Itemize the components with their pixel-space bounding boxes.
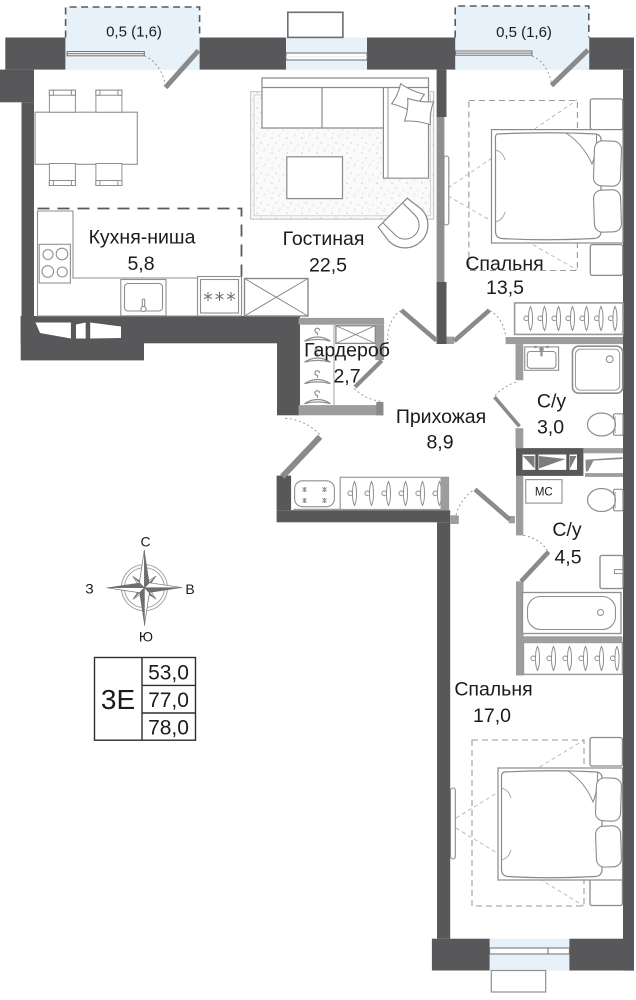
svg-text:3,0: 3,0: [537, 417, 564, 439]
svg-text:Гардероб: Гардероб: [304, 340, 390, 362]
svg-text:22,5: 22,5: [309, 255, 347, 277]
svg-text:Гостиная: Гостиная: [283, 228, 365, 250]
svg-text:Спальня: Спальня: [454, 679, 532, 701]
svg-text:2,7: 2,7: [333, 366, 360, 388]
svg-text:4,5: 4,5: [554, 547, 581, 569]
svg-text:0,5 (1,6): 0,5 (1,6): [496, 24, 552, 41]
svg-text:5,8: 5,8: [127, 253, 154, 275]
svg-text:Ю: Ю: [139, 629, 153, 645]
svg-text:17,0: 17,0: [473, 705, 511, 727]
svg-text:78,0: 78,0: [148, 717, 189, 740]
svg-text:С/у: С/у: [552, 519, 582, 541]
svg-text:Спальня: Спальня: [465, 253, 543, 275]
svg-text:13,5: 13,5: [486, 277, 524, 299]
svg-text:С: С: [140, 534, 150, 550]
svg-text:МС: МС: [535, 487, 553, 499]
svg-text:С/у: С/у: [537, 391, 567, 413]
svg-text:77,0: 77,0: [148, 689, 189, 712]
svg-text:В: В: [185, 581, 194, 597]
svg-text:Прихожая: Прихожая: [396, 406, 486, 428]
svg-text:53,0: 53,0: [148, 662, 189, 685]
svg-text:8,9: 8,9: [426, 432, 453, 454]
svg-text:З: З: [85, 581, 93, 597]
svg-text:3Е: 3Е: [101, 684, 135, 715]
svg-text:Кухня-ниша: Кухня-ниша: [89, 227, 196, 249]
svg-text:0,5 (1,6): 0,5 (1,6): [106, 24, 162, 41]
